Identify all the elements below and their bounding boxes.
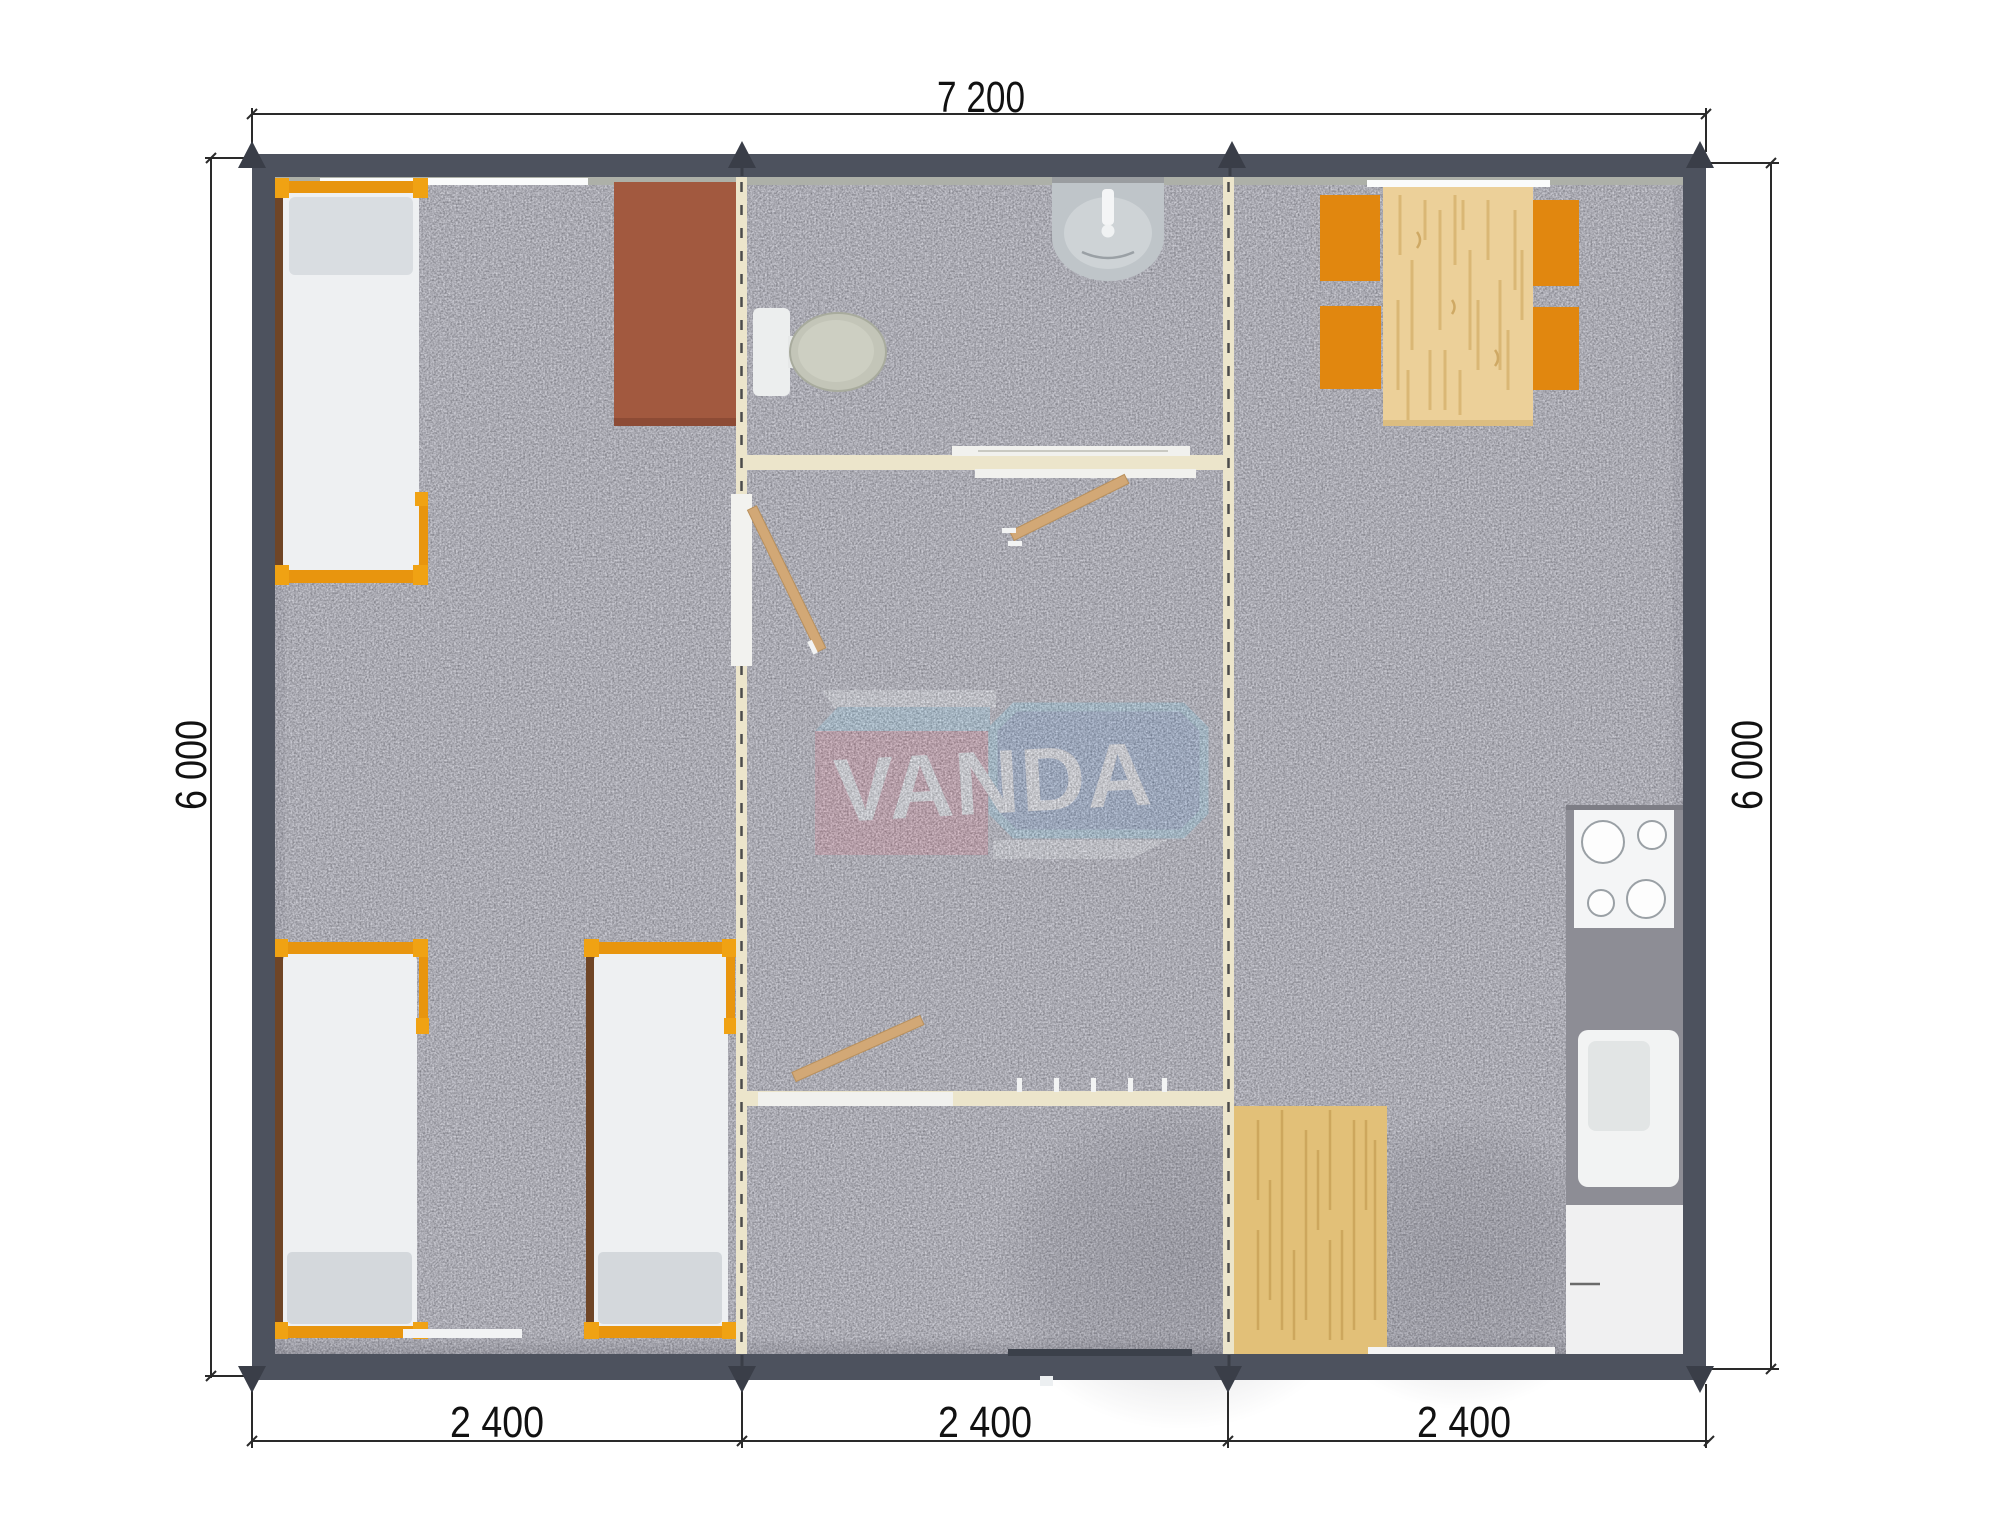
svg-text:6 000: 6 000 — [1723, 720, 1772, 810]
svg-text:2 400: 2 400 — [1417, 1398, 1511, 1447]
svg-text:2 400: 2 400 — [450, 1398, 544, 1447]
svg-text:6 000: 6 000 — [167, 720, 216, 810]
svg-text:2 400: 2 400 — [938, 1398, 1032, 1447]
svg-text:7 200: 7 200 — [937, 73, 1025, 122]
